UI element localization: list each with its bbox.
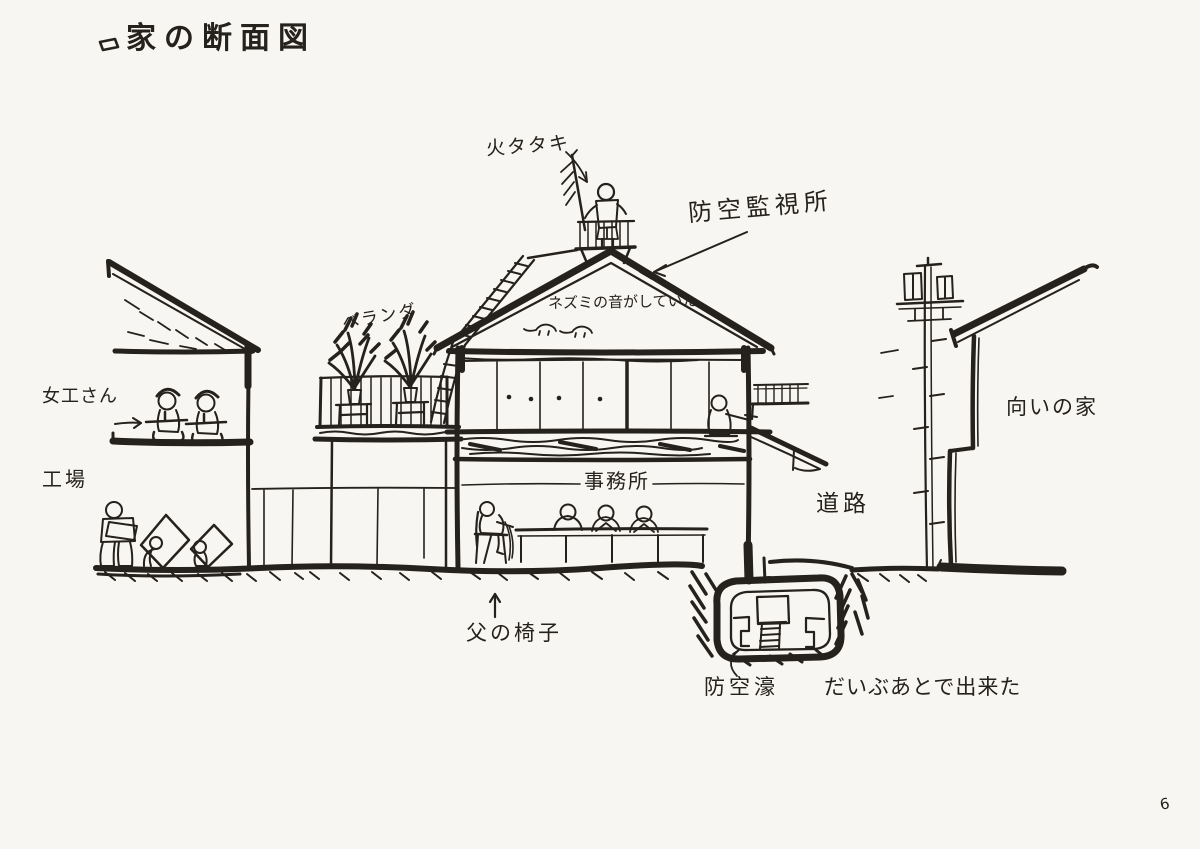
label-opposite-house: 向いの家 [1006,396,1098,419]
fathers-chair-arrow [490,594,500,617]
attic-mice [524,325,592,337]
factory-floor-figures [100,502,232,568]
page-title: 家の断面図 [126,22,316,55]
courtyard-fence [252,440,457,567]
factory-women-arrow [115,418,141,428]
balcony [315,312,461,440]
factory-women-figures [146,389,226,443]
watch-person-figure [561,150,626,248]
label-office: 事務所 [584,470,650,492]
label-fathers-chair: 父の椅子 [466,622,562,645]
label-factory-women: 女工さん [42,387,118,407]
shelter-leader-line [731,650,739,676]
house-cross-section-drawing [0,0,1200,849]
fathers-chair-group [475,502,513,563]
title-bullet-square-icon [100,39,118,50]
label-mice-sound: ネズミの音がしていた [548,293,698,312]
label-shelter-note: だいぶあとで出来た [824,676,1021,699]
label-air-raid-shelter: 防空濠 [704,676,779,699]
label-road: 道路 [816,492,870,517]
office-desk-group [516,505,707,563]
label-factory: 工場 [42,468,88,490]
watch-station-arrow [654,232,747,276]
sketch-page: 家の断面図 火タタキ 防空監視所 ネズミの音がしていた ベランダ 女工さん 工場… [0,0,1200,849]
factory-building [108,261,258,567]
